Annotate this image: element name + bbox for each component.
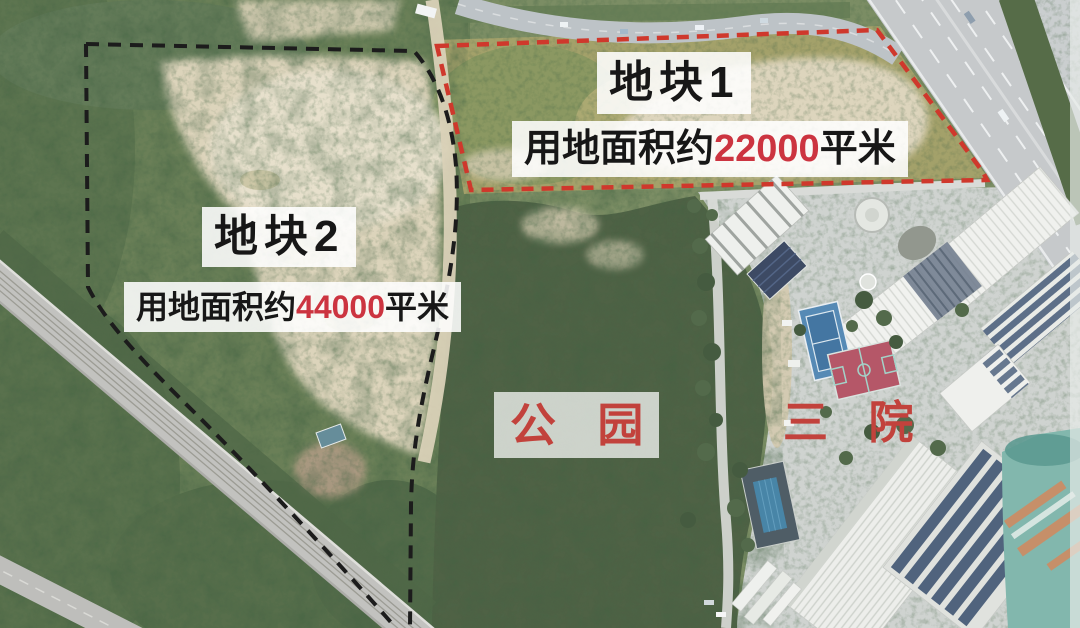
parcel1-area-label: 用地面积约22000平米	[512, 121, 908, 177]
park-label-text: 公园	[510, 399, 685, 451]
parcel2-label: 地块2	[202, 207, 356, 267]
parcel1-label: 地块1	[597, 52, 751, 114]
parcel1-area-value: 22000	[714, 128, 820, 170]
parcel2-area-suffix: 平米	[385, 289, 449, 325]
parcel2-area-prefix: 用地面积约	[136, 289, 296, 325]
parcel1-area-suffix: 平米	[820, 128, 896, 170]
park-label: 公园	[494, 392, 659, 458]
parcel2-area-value: 44000	[296, 289, 385, 325]
hospital-label-text: 三院	[783, 397, 954, 448]
aerial-map: 地块1 用地面积约22000平米 地块2 用地面积约44000平米 公园 三院	[0, 0, 1080, 628]
hospital-label: 三院	[783, 398, 914, 448]
parcel1-area-prefix: 用地面积约	[524, 128, 714, 170]
parcel2-area-label: 用地面积约44000平米	[124, 282, 461, 332]
